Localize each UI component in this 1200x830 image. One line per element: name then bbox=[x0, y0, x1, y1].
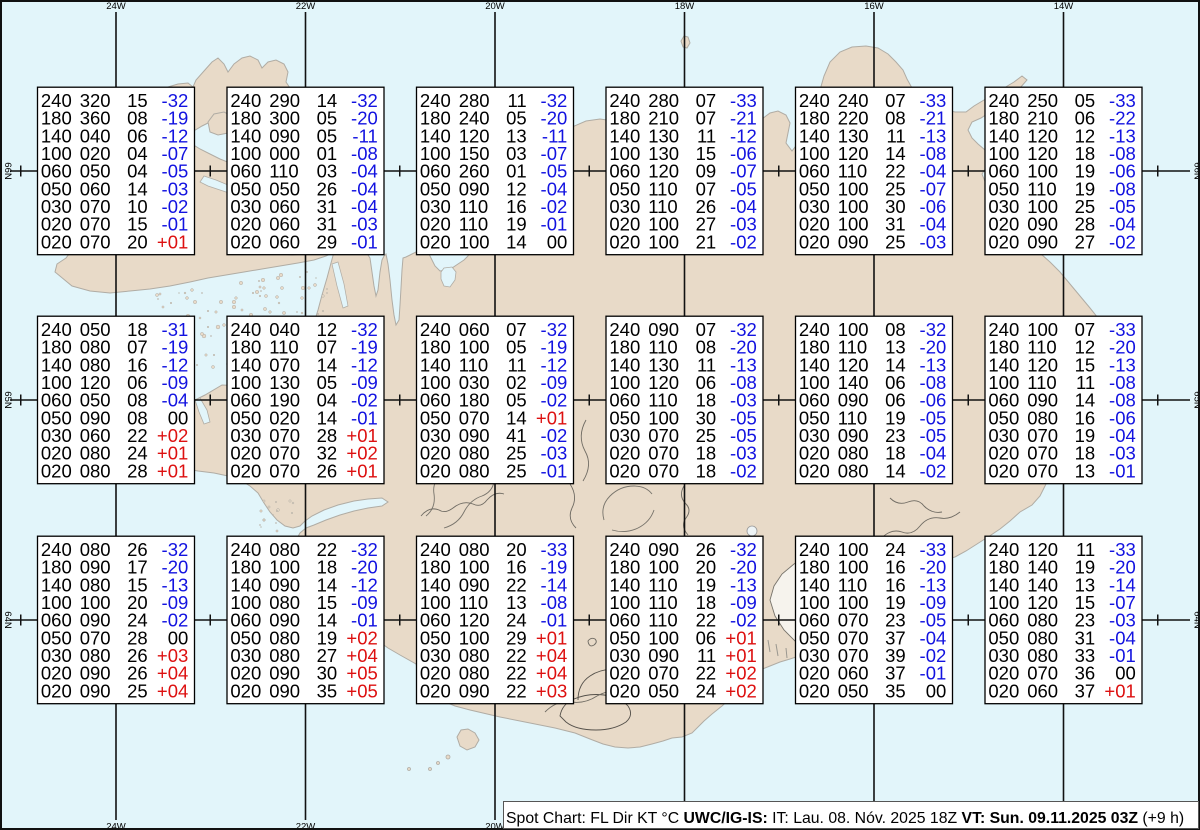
svg-text:35+05: 35+05 bbox=[317, 680, 378, 701]
svg-text:65N: 65N bbox=[2, 391, 13, 409]
svg-text:37+01: 37+01 bbox=[1075, 680, 1136, 701]
svg-text:24+02: 24+02 bbox=[696, 680, 757, 701]
svg-text:20W: 20W bbox=[485, 1, 505, 12]
svg-text:26+01: 26+01 bbox=[317, 460, 378, 481]
svg-text:22W: 22W bbox=[296, 1, 316, 12]
svg-text:18W: 18W bbox=[675, 1, 695, 12]
svg-text:20+01: 20+01 bbox=[127, 231, 188, 252]
svg-text:24W: 24W bbox=[106, 1, 126, 12]
svg-text:25+04: 25+04 bbox=[127, 680, 188, 701]
svg-text:Spot Chart: FL Dir KT °C UWC/I: Spot Chart: FL Dir KT °C UWC/IG-IS: IT: … bbox=[506, 810, 1184, 827]
svg-text:16W: 16W bbox=[864, 1, 884, 12]
svg-text:14W: 14W bbox=[1054, 1, 1074, 12]
svg-text:66N: 66N bbox=[2, 162, 13, 180]
svg-text:64N: 64N bbox=[2, 611, 13, 629]
svg-text:28+01: 28+01 bbox=[127, 460, 188, 481]
svg-text:22+03: 22+03 bbox=[506, 680, 567, 701]
